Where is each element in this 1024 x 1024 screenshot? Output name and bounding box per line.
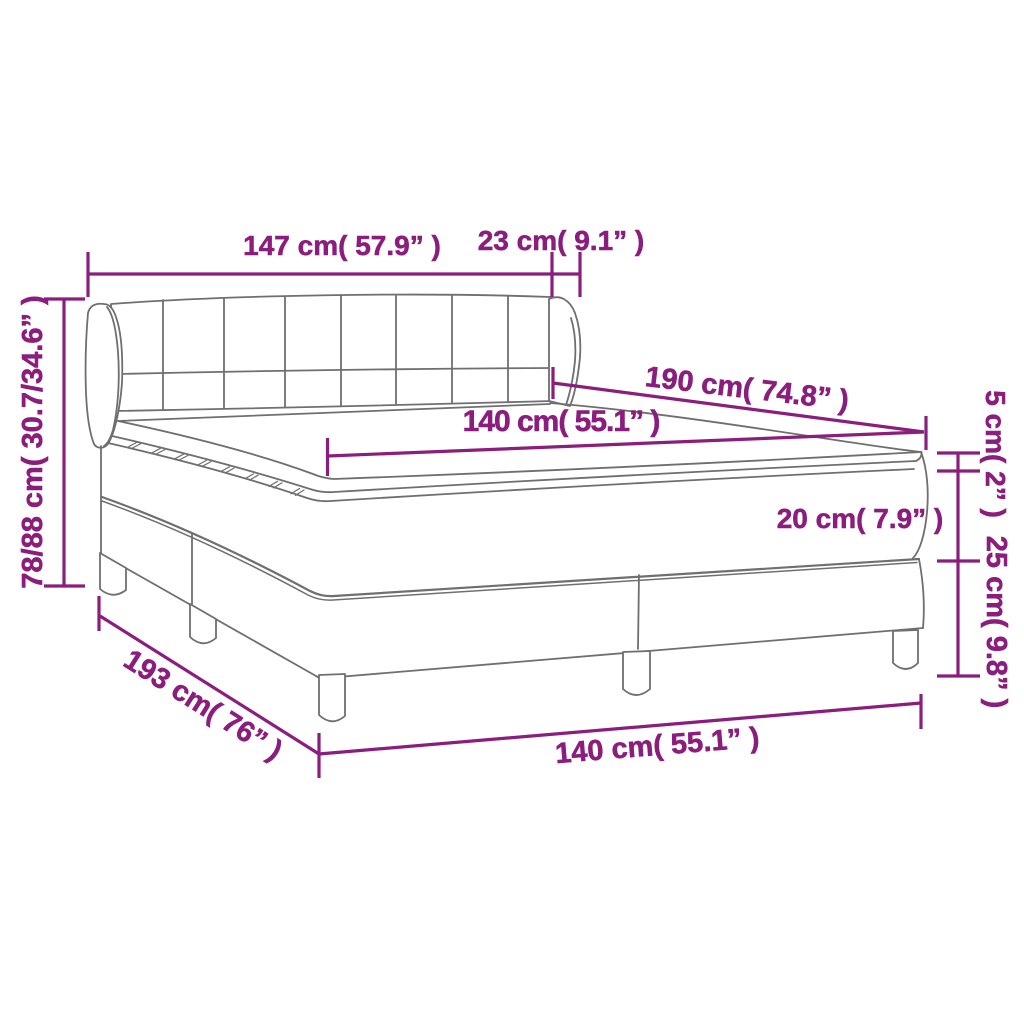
svg-text:20 cm( 7.9” ): 20 cm( 7.9” ): [777, 503, 944, 534]
svg-text:23 cm( 9.1” ): 23 cm( 9.1” ): [478, 225, 645, 256]
svg-text:25 cm( 9.8” ): 25 cm( 9.8” ): [980, 536, 1012, 708]
svg-text:140 cm( 55.1” ): 140 cm( 55.1” ): [463, 405, 660, 438]
svg-text:147 cm( 57.9” ): 147 cm( 57.9” ): [243, 230, 441, 261]
svg-text:5 cm( 2” ): 5 cm( 2” ): [980, 390, 1011, 518]
svg-text:78/88 cm( 30.7/34.6” ): 78/88 cm( 30.7/34.6” ): [17, 295, 49, 588]
svg-text:140 cm( 55.1” ): 140 cm( 55.1” ): [554, 722, 761, 770]
svg-text:193 cm( 76” ): 193 cm( 76” ): [118, 644, 288, 767]
